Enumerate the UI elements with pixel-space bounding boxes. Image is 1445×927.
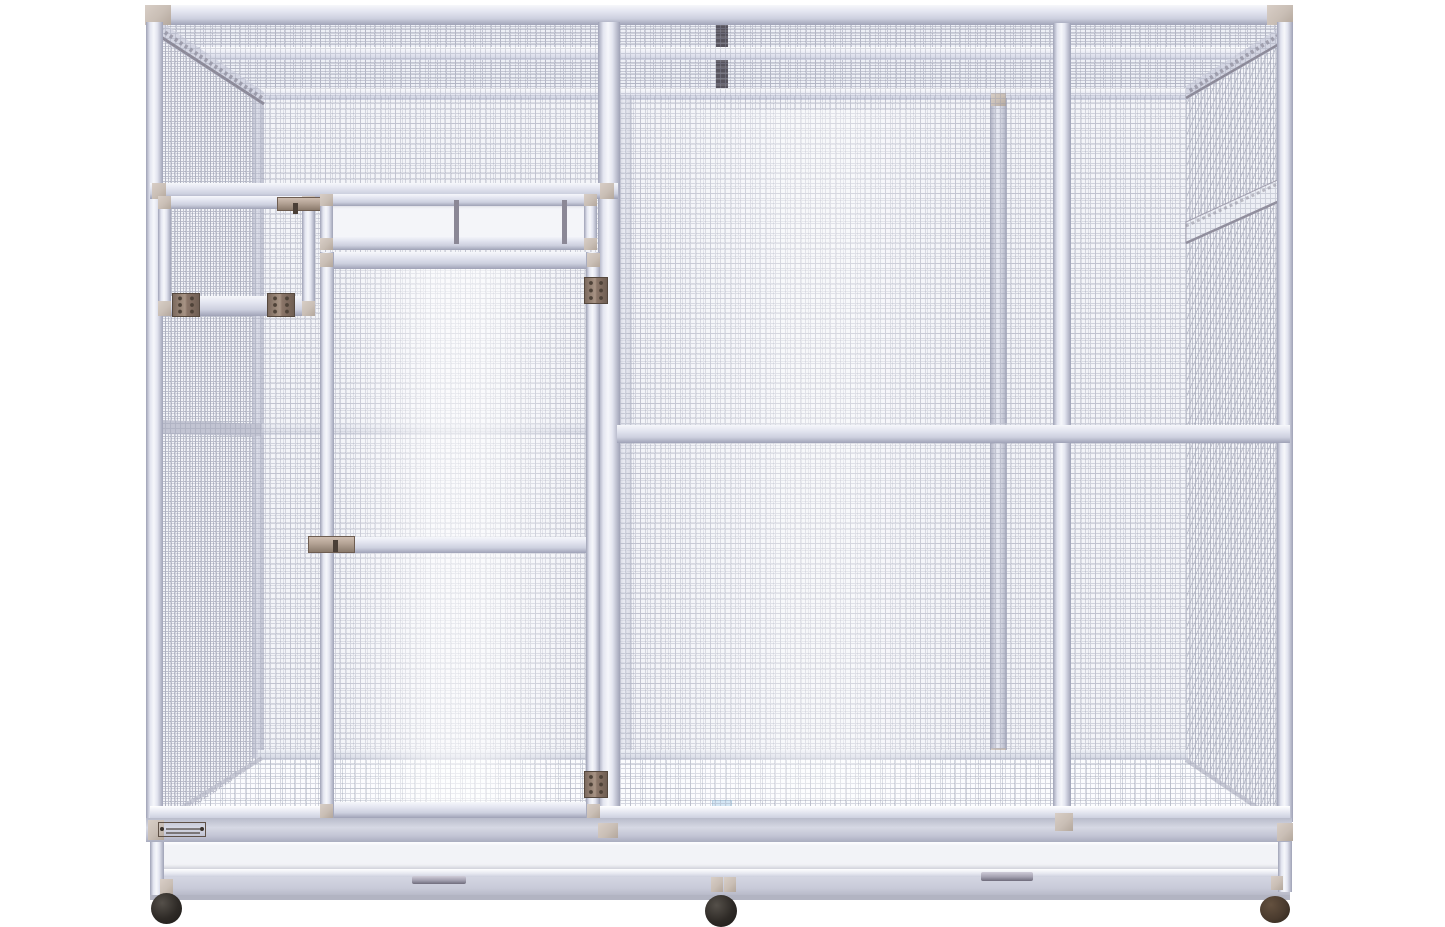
front-crossbar-rail [617,425,1290,443]
front-left-corner-post [146,22,163,822]
door-mid-rail [320,537,600,553]
small-door-cap-br [302,301,315,316]
door-top-rail [320,252,600,269]
small-door-hinge-right [267,293,295,317]
door-hinge-bottom [584,771,608,798]
transom-window [320,194,597,250]
connector-block-center-b [724,877,736,892]
caster-wheel-left [151,893,182,924]
roof-front-rail [145,5,1293,25]
small-door-cap-bl [158,301,171,316]
brand-plate-rivet-left [160,827,164,831]
transom-cap-tr [584,194,597,206]
door-right-stile [586,252,600,818]
door-latch [308,536,355,553]
post-foot-cap-right [1277,823,1293,841]
small-door-cap-tl [158,196,171,209]
small-door-left-stile [158,196,171,316]
door-bottom-rail [320,802,600,818]
walk-in-door [320,252,600,818]
connector-block-center-a [711,877,723,892]
post-foot-cap-midright [1055,813,1073,831]
brand-plate [158,822,206,837]
tray-handle-left [412,876,466,884]
base-mid-rail [150,869,1290,877]
caster-wheel-right [1260,896,1290,923]
front-mid-post [1053,23,1071,822]
glare-right-section [640,110,970,800]
tray-front-panel [150,842,1290,869]
transom-pane-divider-2 [562,200,567,244]
door-cap-tr [587,253,600,267]
transom-cap-tl [320,194,333,206]
small-door-hinge-left [172,293,200,317]
front-center-post [598,22,620,822]
base-rail [146,818,1292,842]
transom-pane-divider-1 [454,200,459,244]
caster-wheel-center [705,895,737,927]
aviary-product-render [0,0,1445,927]
connector-block-right [1271,876,1283,890]
small-door-latch-pin [293,203,298,214]
door-left-stile [320,252,334,818]
left-section-top-rail-right-cap [600,183,614,199]
door-latch-pin [333,540,338,552]
post-foot-cap-center [598,823,618,838]
door-hinge-top [584,277,608,304]
door-cap-bl [320,804,333,818]
brand-plate-rivet-right [200,827,204,831]
transom-cap-br [584,238,597,250]
transom-cap-bl [320,238,333,250]
front-right-corner-post [1277,22,1293,822]
small-access-door [158,196,315,316]
door-cap-tl [320,253,333,267]
small-door-right-stile [302,196,315,316]
small-door-latch [277,197,322,211]
door-cap-br [587,804,600,818]
tray-handle-right [981,872,1033,881]
